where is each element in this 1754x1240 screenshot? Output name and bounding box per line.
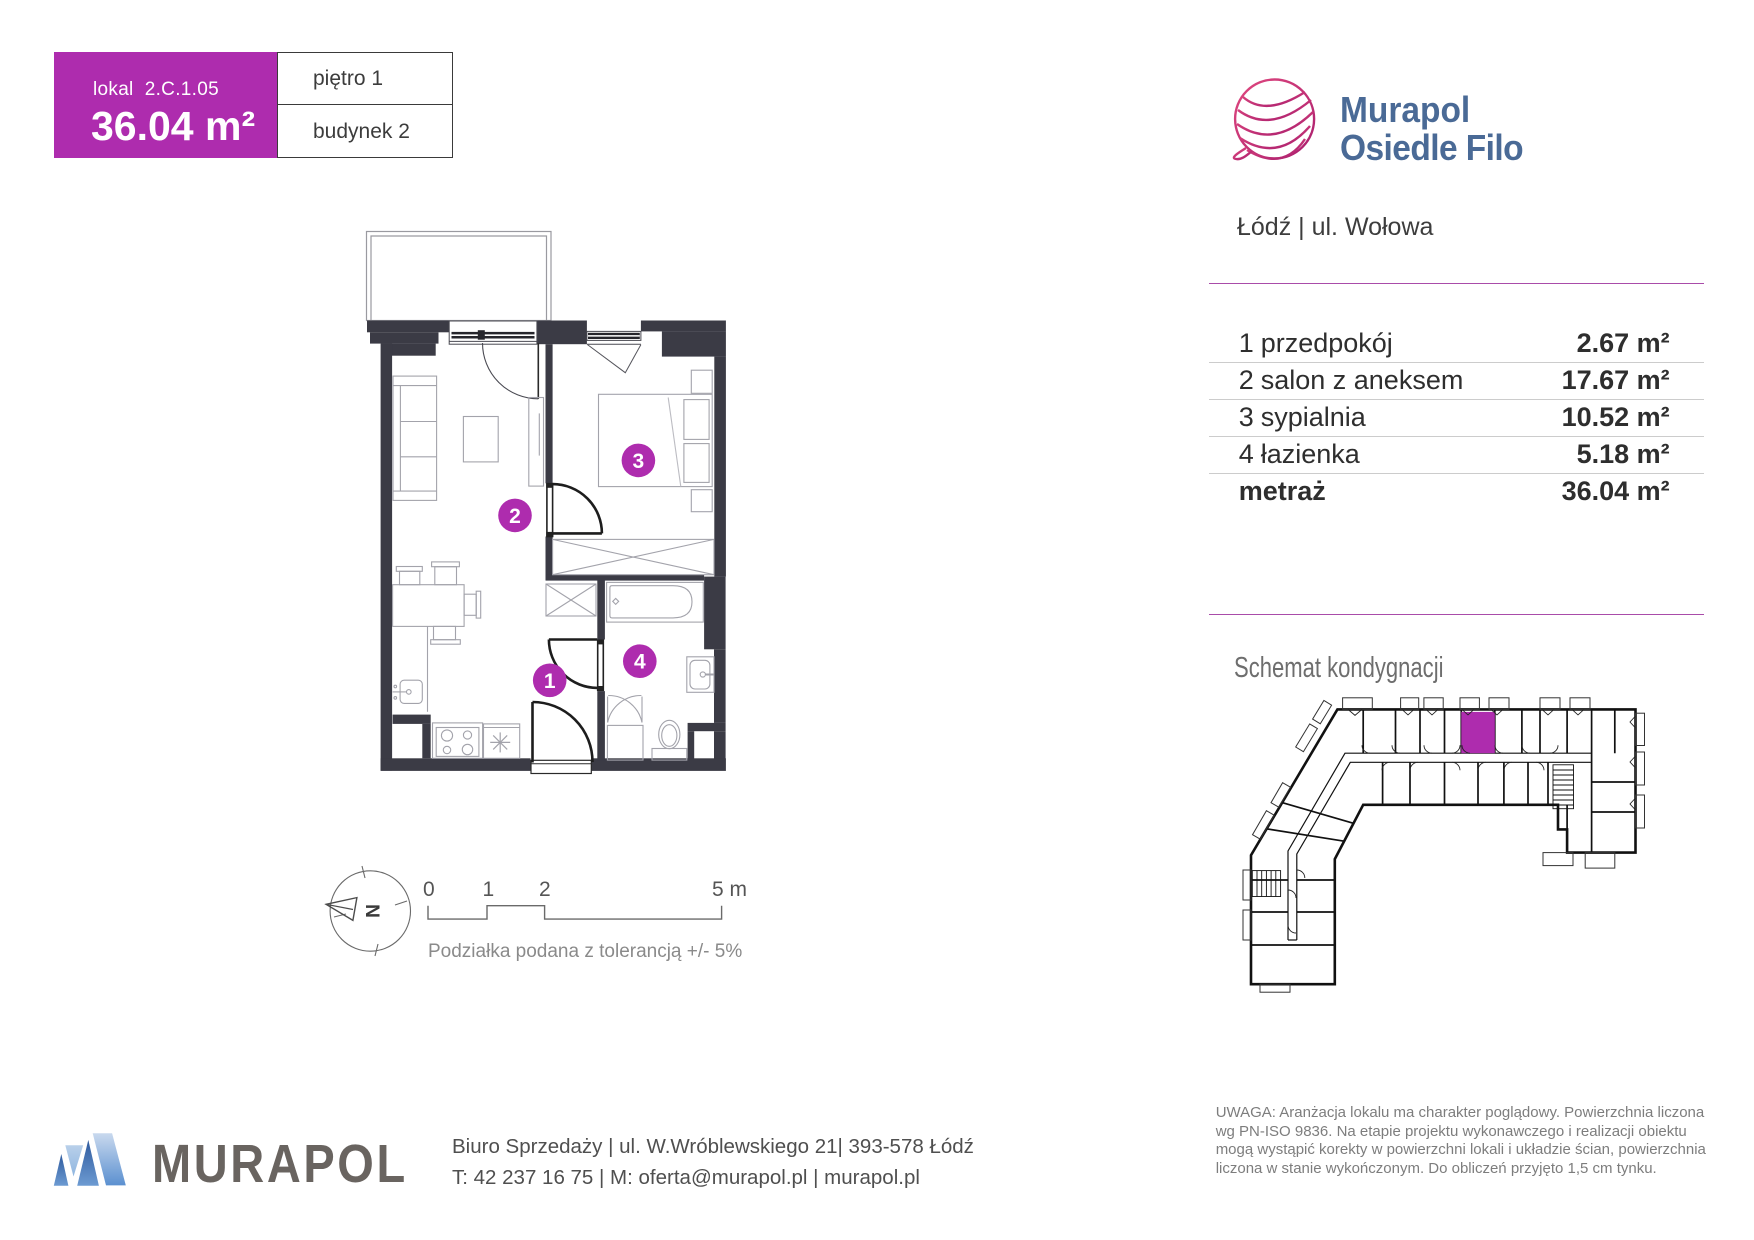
svg-text:2: 2 xyxy=(509,505,521,528)
svg-text:1: 1 xyxy=(483,878,495,901)
svg-text:0: 0 xyxy=(423,878,435,901)
svg-text:4: 4 xyxy=(634,651,646,674)
svg-text:2: 2 xyxy=(539,878,551,901)
svg-text:5 m: 5 m xyxy=(712,878,747,901)
svg-text:1: 1 xyxy=(544,670,556,693)
svg-text:Podziałka podana z tolerancją: Podziałka podana z tolerancją +/- 5% xyxy=(428,941,742,962)
svg-text:3: 3 xyxy=(633,450,645,473)
svg-text:N: N xyxy=(361,904,382,918)
